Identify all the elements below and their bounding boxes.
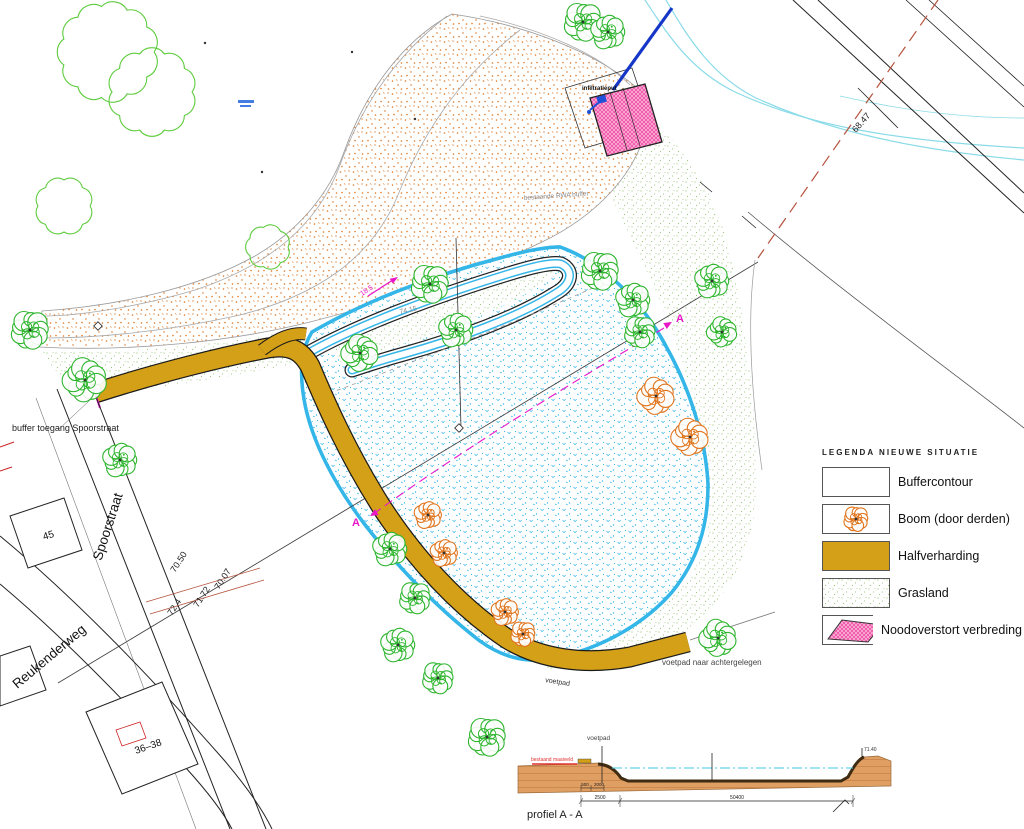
green-tree-icon [11, 312, 48, 350]
site-plan-stage: buffer toegang SpoorstraatSpoorstraatReu… [0, 0, 1024, 829]
canopy-outline [57, 2, 157, 103]
annotation-label: buffer toegang Spoorstraat [12, 423, 119, 433]
legend-item-label: Boom (door derden) [898, 512, 1010, 526]
annotation-label: voetpad naar achtergelegen [662, 658, 762, 667]
green-tree-icon [423, 663, 453, 694]
orange-tree-icon [414, 502, 441, 529]
legend-title: LEGENDA NIEUWE SITUATIE [822, 448, 1022, 457]
buffer-swatch-icon [822, 467, 890, 497]
green-tree-icon [699, 619, 736, 656]
boom-swatch-icon [822, 504, 890, 534]
annotation-label: 71.40 [864, 747, 877, 753]
annotation-label: 50400 [730, 795, 744, 801]
noodoverstort-swatch-icon [822, 615, 873, 645]
legend-item-label: Grasland [898, 586, 949, 600]
green-tree-icon [381, 628, 415, 661]
annotation-label: 2500 [594, 795, 605, 801]
profile-voetpad [578, 759, 591, 763]
overflow-pipe [613, 8, 672, 90]
annotation-label: infiltratieput [582, 86, 617, 92]
annotation-label: 72.4 [165, 597, 183, 617]
profile-markers [602, 746, 862, 783]
stream-lines [645, 0, 1024, 160]
green-tree-icon [103, 443, 137, 476]
orange-tree-icon [511, 622, 535, 646]
orange-tree-icon [491, 599, 518, 626]
legend-item-noodoverstort: Noodoverstort verbreding [822, 615, 1022, 645]
legend-item-label: Halfverharding [898, 549, 979, 563]
legend-panel: LEGENDA NIEUWE SITUATIE BuffercontourBoo… [822, 448, 1022, 652]
legend-item-label: Noodoverstort verbreding [881, 623, 1022, 637]
profile-liner [598, 757, 864, 781]
annotation-label: profiel A - A [527, 809, 583, 821]
annotation-label: A [676, 313, 684, 325]
annotation-label: voetpad [587, 735, 611, 742]
tree-canopy-outlines [36, 2, 289, 269]
annotation-label: 70.07 [212, 567, 233, 591]
orange-tree-icon [430, 540, 457, 567]
building-36-38 [86, 682, 198, 794]
annotation-label: 500 [581, 782, 589, 787]
canopy-outline [109, 48, 195, 137]
tiny-blue-note [238, 100, 254, 107]
legend-item-boom: Boom (door derden) [822, 504, 1022, 534]
canopy-outline [36, 178, 92, 234]
annotation-label: 71.72 [191, 585, 212, 609]
annotation-label: voetpad [545, 677, 571, 688]
green-tree-icon [400, 583, 430, 614]
legend-item-label: Buffercontour [898, 475, 973, 489]
profile-a-a [518, 746, 891, 812]
profile-earth [518, 756, 891, 793]
legend-item-halfverharding: Halfverharding [822, 541, 1022, 571]
site-plan-drawing: buffer toegang SpoorstraatSpoorstraatReu… [0, 0, 1024, 829]
legend-item-grasland: Grasland [822, 578, 1022, 608]
grasland-swatch-icon [822, 578, 890, 608]
legend-items: BuffercontourBoom (door derden)Halfverha… [822, 467, 1022, 645]
orange-tree-icon [844, 507, 868, 531]
boundary-dashed-red [758, 0, 938, 258]
annotation-label: bestaand maaiveld [531, 757, 573, 763]
annotation-label: A [352, 517, 360, 529]
annotation-label: 2000 [594, 782, 605, 787]
annotation-label: 70.50 [168, 550, 189, 574]
legend-item-buffer: Buffercontour [822, 467, 1022, 497]
green-tree-icon [468, 719, 505, 757]
green-tree-icon [625, 317, 655, 348]
halfverharding-swatch-icon [822, 541, 890, 571]
annotation-label: Spoorstraat [90, 491, 126, 562]
